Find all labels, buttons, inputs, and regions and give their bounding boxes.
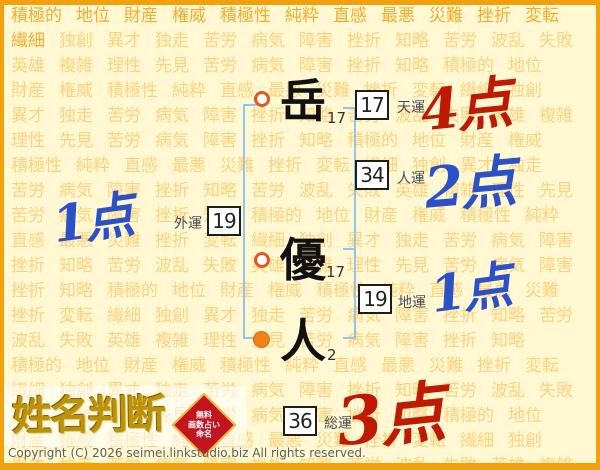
badge-line-3: 命名 <box>196 430 212 439</box>
frame-border-bottom <box>0 463 600 470</box>
fortune-box-tenun: 17 <box>355 90 389 120</box>
fortune-box-jinun: 34 <box>355 160 389 190</box>
gaiun-bracket <box>243 104 257 339</box>
stroke-count-3: 2 <box>327 346 337 364</box>
fortune-label-chiun: 地運 <box>398 292 426 312</box>
badge-line-2: 画数占い <box>188 420 220 429</box>
badge-line-1: 無料 <box>196 411 212 420</box>
stroke-count-1: 17 <box>327 109 346 127</box>
name-char-2: 優 <box>278 236 328 284</box>
fortune-value-gaiun: 19 <box>212 209 235 233</box>
fortune-label-jinun: 人運 <box>397 168 425 188</box>
score-jinun: 2点 <box>421 136 517 224</box>
score-chiun: 1点 <box>425 245 513 327</box>
fortune-value-jinun: 34 <box>360 163 383 187</box>
copyright-text: Copyright (C) 2026 seimei.linkstudio.biz… <box>8 446 366 460</box>
fortune-value-tenun: 17 <box>360 93 383 117</box>
score-gaiun: 1点 <box>47 175 135 257</box>
fortune-box-chiun: 19 <box>358 284 392 314</box>
given-marker-icon <box>254 252 270 268</box>
score-tenun: 4点 <box>416 58 513 148</box>
frame-border-right <box>596 0 600 470</box>
given-marker-icon <box>253 331 270 348</box>
seimei-result-panel: 積極的地位財産権威積極性純粋直感最悪災難挫折変転繊細独創異才独走苦労病気障害挫折… <box>0 0 600 470</box>
frame-border-top <box>0 0 600 5</box>
surname-marker-icon <box>254 91 270 107</box>
fortune-value-chiun: 19 <box>363 287 386 311</box>
fortune-box-gaiun: 19 <box>207 206 241 236</box>
fortune-value-soun: 36 <box>288 409 311 433</box>
stroke-count-2: 17 <box>326 263 345 281</box>
name-bracket-mid-arm <box>343 248 354 250</box>
site-logo[interactable]: 姓名判断 <box>12 393 165 440</box>
badge-text: 無料 画数占い 命名 <box>188 411 220 440</box>
frame-border-left <box>0 0 4 470</box>
name-char-1: 岳 <box>278 77 328 125</box>
fortune-box-soun: 36 <box>283 406 317 436</box>
name-bracket <box>343 107 356 339</box>
name-char-3: 人 <box>278 317 328 365</box>
fortune-label-gaiun: 外運 <box>166 213 202 233</box>
